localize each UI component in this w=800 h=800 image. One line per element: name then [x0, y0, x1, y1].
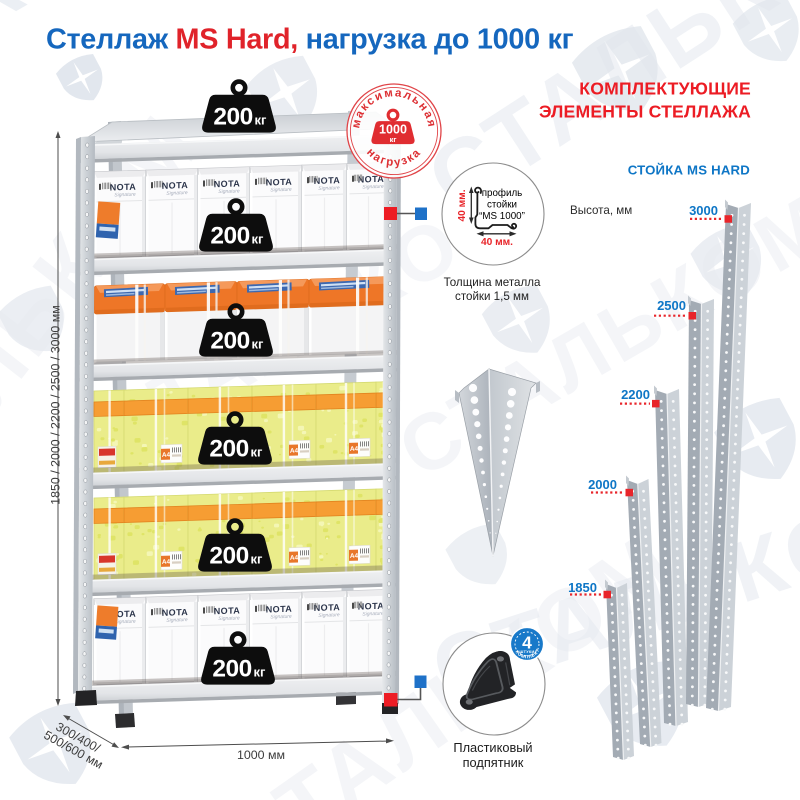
svg-text:3000: 3000 [689, 203, 718, 218]
svg-text:2000: 2000 [588, 477, 617, 492]
svg-text:Signature: Signature [166, 190, 188, 197]
svg-text:A4: A4 [350, 553, 359, 560]
svg-text:Signature: Signature [362, 184, 384, 191]
svg-text:кг: кг [390, 135, 397, 144]
svg-text:ЭЛЕМЕНТЫ СТЕЛЛАЖА: ЭЛЕМЕНТЫ СТЕЛЛАЖА [539, 102, 751, 122]
svg-text:Signature: Signature [218, 615, 240, 622]
svg-text:1000 мм: 1000 мм [237, 748, 285, 762]
svg-text:стойки: стойки [487, 200, 517, 211]
svg-text:Signature: Signature [270, 187, 292, 194]
svg-text:200: 200 [209, 436, 248, 463]
svg-text:Пластиковый: Пластиковый [453, 740, 532, 755]
svg-text:кг: кг [251, 552, 264, 567]
svg-text:КОМПЛЕКТУЮЩИЕ: КОМПЛЕКТУЮЩИЕ [579, 79, 751, 99]
svg-text:A4: A4 [162, 559, 171, 566]
svg-text:подпятник: подпятник [463, 755, 524, 770]
svg-text:кг: кг [254, 665, 267, 680]
svg-text:кг: кг [251, 445, 264, 460]
svg-text:Signature: Signature [318, 185, 340, 192]
svg-text:2200: 2200 [621, 387, 650, 402]
svg-text:200: 200 [209, 543, 248, 570]
svg-text:“MS 1000”: “MS 1000” [479, 211, 525, 222]
svg-text:A4: A4 [290, 555, 299, 562]
svg-text:40 мм.: 40 мм. [481, 237, 513, 248]
svg-text:Толщина металла: Толщина металла [444, 276, 541, 289]
svg-text:Signature: Signature [114, 192, 136, 199]
svg-text:Signature: Signature [270, 614, 292, 621]
svg-text:A4: A4 [290, 448, 299, 455]
svg-text:профиль: профиль [482, 188, 523, 199]
svg-text:кг: кг [255, 113, 268, 128]
svg-text:1850: 1850 [568, 580, 597, 595]
svg-text:СТОЙКА MS HARD: СТОЙКА MS HARD [628, 163, 750, 178]
svg-text:2500: 2500 [657, 298, 686, 313]
svg-text:A4: A4 [162, 452, 171, 459]
svg-text:Высота, мм: Высота, мм [570, 204, 632, 217]
svg-text:кг: кг [252, 337, 265, 352]
svg-text:Стеллаж MS Hard, нагрузка до 1: Стеллаж MS Hard, нагрузка до 1000 кг [46, 24, 574, 56]
svg-text:Signature: Signature [218, 188, 240, 195]
svg-text:200: 200 [212, 656, 251, 683]
svg-text:1850 / 2000 / 2200 / 2500 / 30: 1850 / 2000 / 2200 / 2500 / 3000 мм [49, 305, 63, 505]
svg-text:200: 200 [210, 328, 249, 355]
svg-text:A4: A4 [350, 446, 359, 453]
svg-text:200: 200 [210, 223, 249, 250]
svg-text:Signature: Signature [362, 611, 384, 618]
svg-text:Signature: Signature [166, 617, 188, 624]
svg-text:200: 200 [213, 104, 252, 131]
svg-text:Signature: Signature [318, 612, 340, 619]
svg-text:стойки 1,5 мм: стойки 1,5 мм [455, 290, 529, 303]
svg-text:40 мм.: 40 мм. [457, 189, 468, 221]
svg-text:кг: кг [252, 232, 265, 247]
svg-text:Signature: Signature [114, 619, 136, 626]
